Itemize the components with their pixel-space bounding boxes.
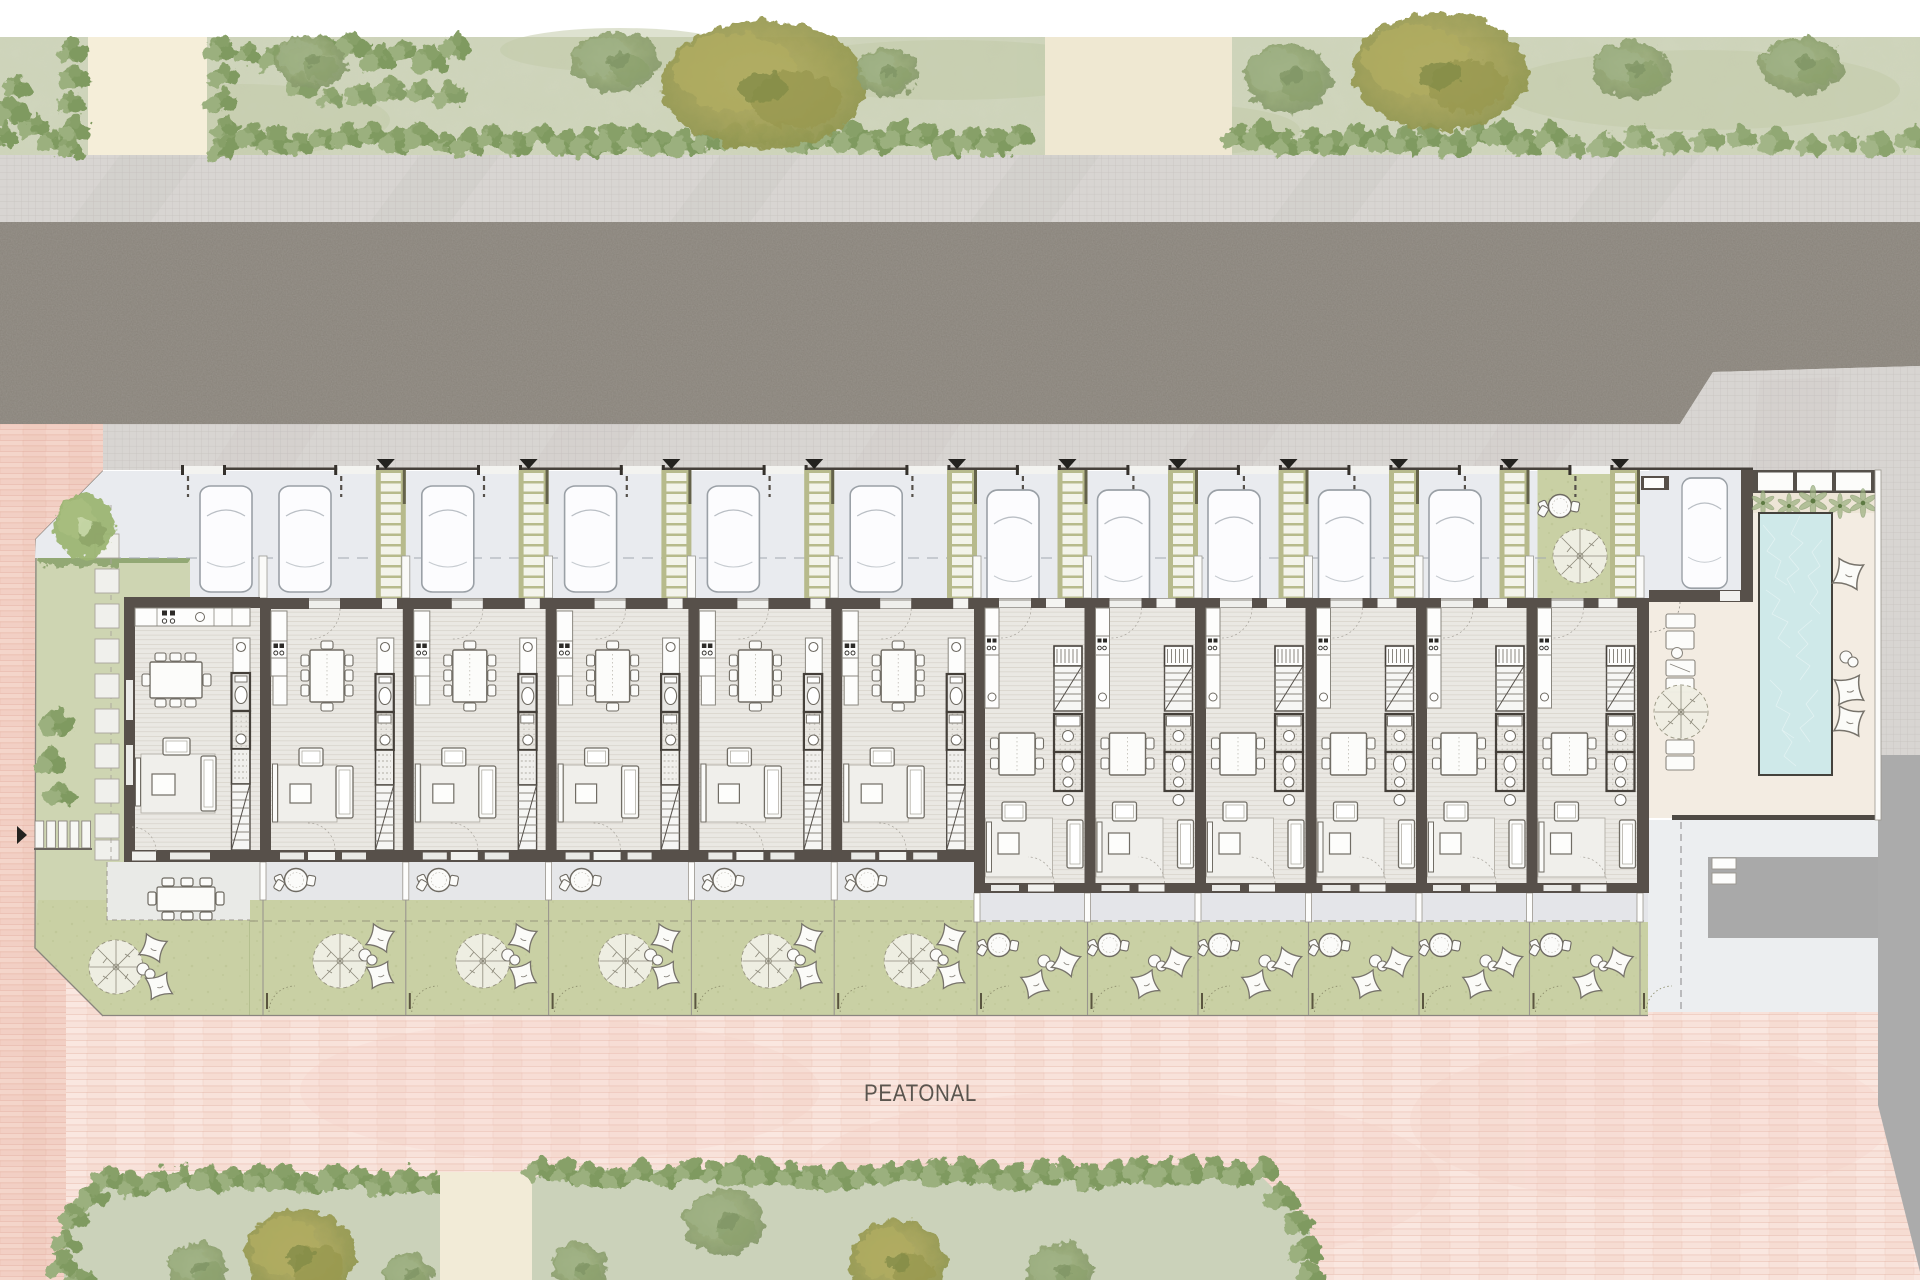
svg-text:PEATONAL: PEATONAL: [864, 1080, 977, 1107]
